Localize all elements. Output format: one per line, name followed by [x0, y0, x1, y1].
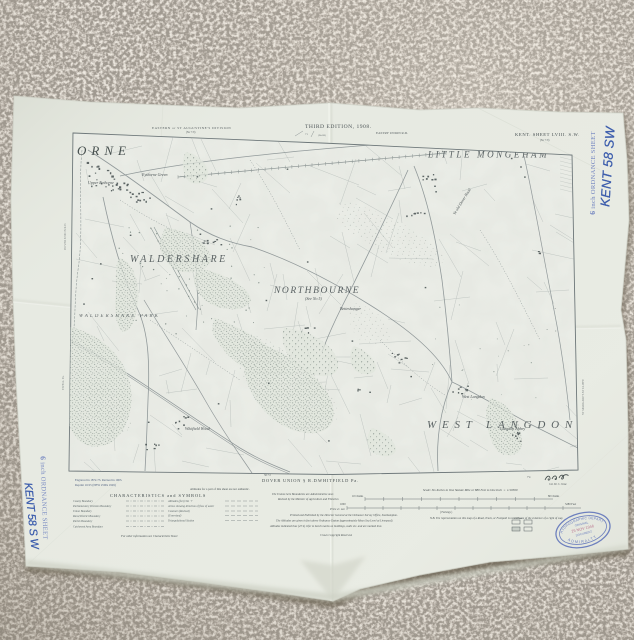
- svg-text:Revised by the Minister of Agr: Revised by the Minister of Agriculture a…: [277, 497, 339, 501]
- svg-text:THIRD EDITION, 1908.: THIRD EDITION, 1908.: [305, 124, 372, 130]
- svg-text:ST MARGARET AT CLIFFE: ST MARGARET AT CLIFFE: [581, 379, 585, 415]
- svg-text:1000: 1000: [340, 503, 346, 506]
- svg-text:(No5W): (No5W): [318, 134, 326, 137]
- svg-text:WALDERSHARE PARK: WALDERSHARE PARK: [79, 314, 160, 319]
- svg-text:Whitfield Wood: Whitfield Wood: [185, 426, 211, 431]
- svg-text:Contours (Revised): Contours (Revised): [168, 510, 190, 513]
- svg-text:Altitudes indicated thus (23·4: Altitudes indicated thus (23·4) refer to…: [269, 524, 382, 528]
- svg-text:The Altitudes are given in fee: The Altitudes are given in feet above Or…: [276, 519, 393, 523]
- svg-text:N.B. The representation on th: N.B. The representation on this map of a…: [429, 516, 563, 520]
- svg-text:Scale: Six Inches to One Stat: Scale: Six Inches to One Statute Mile or…: [423, 488, 518, 492]
- svg-text:(No 7 N): (No 7 N): [186, 131, 196, 134]
- svg-text:ORNE: ORNE: [77, 143, 131, 158]
- svg-text:Catchment Area Boundary: Catchment Area Boundary: [73, 526, 104, 529]
- svg-text:Triangulational Station: Triangulational Station: [168, 520, 195, 523]
- svg-text:7′4: 7′4: [527, 476, 531, 479]
- svg-text:( Furlongs ): ( Furlongs ): [440, 511, 452, 514]
- svg-text:WALDERSHARE: WALDERSHARE: [130, 254, 228, 265]
- svg-text:KENT. SHEET LVIII. S.W.: KENT. SHEET LVIII. S.W.: [515, 132, 580, 137]
- svg-text:West Langdon: West Langdon: [462, 394, 485, 399]
- svg-text:CHARACTERISTICS and SYMBOLS: CHARACTERISTICS and SYMBOLS: [110, 493, 206, 498]
- svg-text:80 Chains: 80 Chains: [548, 495, 559, 498]
- svg-text:Parliamentary Division Boundar: Parliamentary Division Boundary: [72, 505, 112, 508]
- svg-text:Price 2/- net.: Price 2/- net.: [329, 507, 345, 511]
- svg-text:Arrow showing direction of flo: Arrow showing direction of flow of water: [167, 505, 215, 508]
- svg-text:Langdon Abbey: Langdon Abbey: [499, 426, 525, 431]
- svg-text:EWELL Pa.: EWELL Pa.: [61, 375, 65, 390]
- svg-text:DOVER UNION R.D.: DOVER UNION R.D.: [63, 223, 67, 250]
- svg-text:WHITFIELD Pa.: WHITFIELD Pa.: [318, 478, 359, 483]
- svg-text:58 7′2: 58 7′2: [264, 474, 271, 477]
- svg-text:Eythorne Green: Eythorne Green: [141, 172, 168, 177]
- svg-text:Betteshanger: Betteshanger: [340, 306, 362, 311]
- svg-text:(No 7 N): (No 7 N): [540, 139, 550, 142]
- svg-text:(See No 5): (See No 5): [305, 296, 323, 301]
- svg-text:DOVER UNION § R.D.: DOVER UNION § R.D.: [262, 478, 319, 483]
- svg-text:Engraved in 1872-73. Revised: Engraved in 1872-73. Revised in 1903.: [75, 478, 122, 482]
- svg-text:EASTRY UNION R.D.: EASTRY UNION R.D.: [376, 131, 408, 135]
- svg-text:Altitudes (feet) 341 ·7: Altitudes (feet) 341 ·7: [167, 500, 193, 503]
- svg-text:Altitudes for a part of this s: Altitudes for a part of this sheet are n…: [190, 487, 250, 491]
- svg-text:10 Chains: 10 Chains: [352, 495, 363, 498]
- svg-text:The Unions here Boundaries are: The Unions here Boundaries are Administr…: [272, 492, 334, 496]
- svg-text:Col. Sir C. Close: Col. Sir C. Close: [549, 483, 568, 486]
- svg-text:Union Boundary: Union Boundary: [73, 510, 92, 513]
- svg-text:Upper Eythorne: Upper Eythorne: [88, 180, 114, 185]
- svg-text:County Boundary: County Boundary: [73, 500, 94, 503]
- svg-text:FEET mls: FEET mls: [513, 517, 523, 520]
- svg-text:Reprint 10/25 (NEW 2500s 1929): Reprint 10/25 (NEW 2500s 1929): [75, 483, 116, 487]
- svg-text:NORTHBOURNE: NORTHBOURNE: [273, 286, 360, 296]
- svg-text:Rural District Boundary: Rural District Boundary: [72, 515, 101, 518]
- svg-text:Parish Boundary: Parish Boundary: [72, 520, 93, 523]
- svg-text:Crown Copyright Reserved.: Crown Copyright Reserved.: [320, 533, 353, 537]
- svg-text:For other information see Char: For other information see Characteristic…: [120, 534, 178, 538]
- svg-text:Printed and Published by the D: Printed and Published by the Director Ge…: [289, 513, 398, 517]
- svg-text:5280 Feet: 5280 Feet: [565, 503, 576, 506]
- svg-text:EASTERN or ST AUGUSTINE'S DIVI: EASTERN or ST AUGUSTINE'S DIVISION: [152, 126, 231, 130]
- svg-text:(Unrevised): (Unrevised): [168, 515, 181, 518]
- svg-text:6 inch ORDNANCE SHEET: 6 inch ORDNANCE SHEET: [588, 131, 597, 215]
